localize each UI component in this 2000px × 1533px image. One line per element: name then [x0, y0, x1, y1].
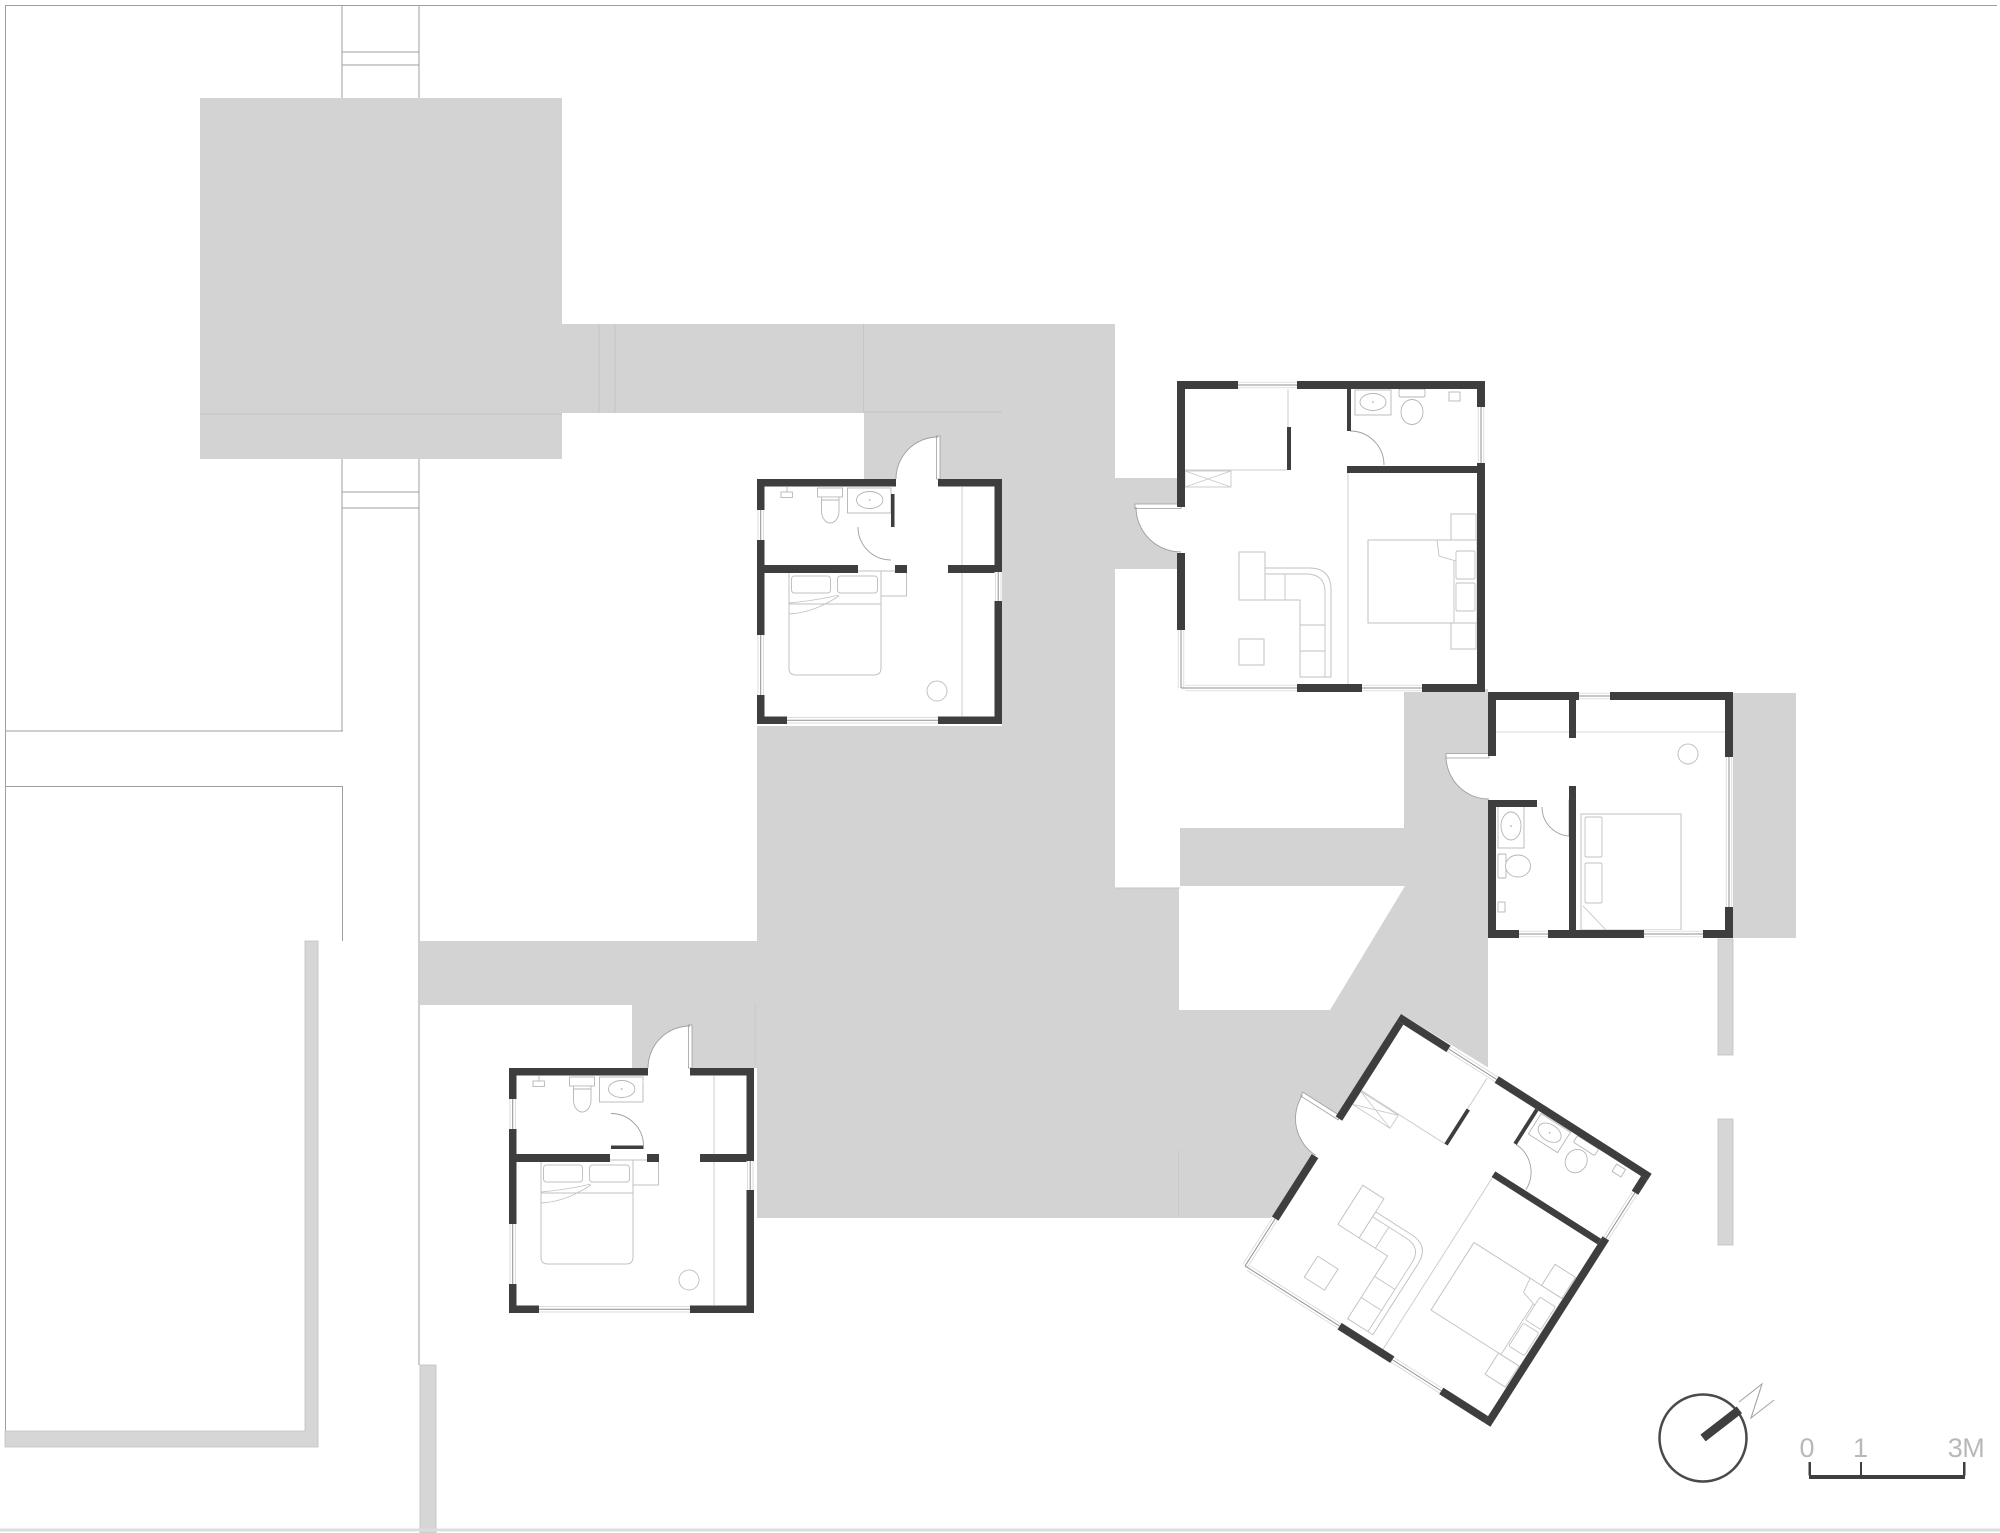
svg-text:3M: 3M — [1948, 1433, 1985, 1463]
svg-text:1: 1 — [1853, 1433, 1868, 1463]
svg-text:0: 0 — [1799, 1433, 1814, 1463]
